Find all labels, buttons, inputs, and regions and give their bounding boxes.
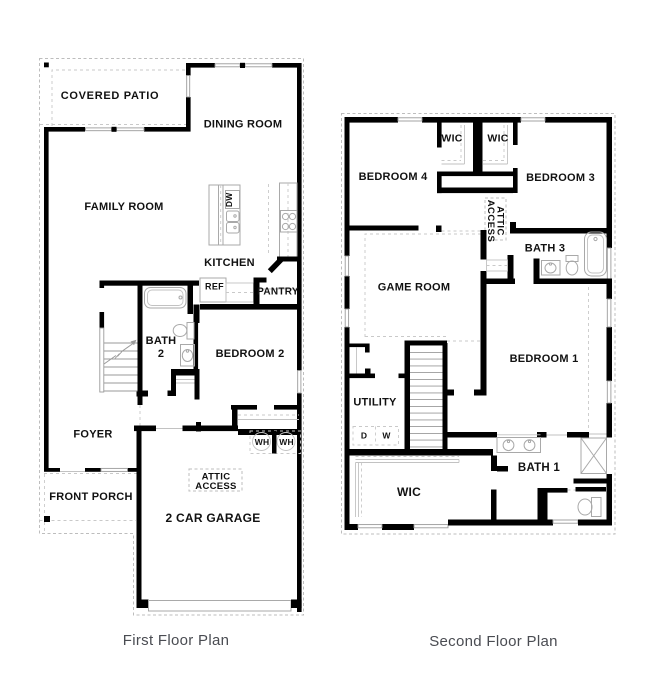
svg-text:FRONT PORCH: FRONT PORCH [49, 491, 132, 503]
svg-text:UTILITY: UTILITY [353, 397, 397, 409]
svg-text:DINING ROOM: DINING ROOM [204, 119, 283, 131]
svg-text:WH: WH [279, 437, 294, 447]
svg-text:BEDROOM 3: BEDROOM 3 [526, 172, 595, 184]
svg-text:BATH 1: BATH 1 [518, 462, 561, 474]
svg-text:WIC: WIC [441, 133, 462, 145]
svg-text:BATH 3: BATH 3 [525, 243, 565, 255]
svg-text:2: 2 [158, 348, 164, 360]
svg-text:PANTRY: PANTRY [257, 287, 299, 298]
svg-text:2 CAR GARAGE: 2 CAR GARAGE [165, 511, 260, 525]
svg-text:BEDROOM 4: BEDROOM 4 [359, 171, 429, 183]
svg-text:W: W [382, 431, 391, 441]
svg-text:ACCESS: ACCESS [195, 481, 236, 492]
svg-text:FOYER: FOYER [73, 429, 112, 441]
svg-text:FAMILY ROOM: FAMILY ROOM [84, 201, 163, 213]
svg-text:GAME ROOM: GAME ROOM [378, 282, 451, 294]
svg-text:BATH: BATH [146, 335, 177, 347]
svg-text:WIC: WIC [487, 133, 508, 145]
svg-text:BEDROOM 1: BEDROOM 1 [510, 353, 579, 365]
svg-text:WIC: WIC [397, 485, 421, 499]
svg-text:WH: WH [255, 437, 270, 447]
svg-text:DW: DW [224, 192, 234, 207]
svg-text:BEDROOM 2: BEDROOM 2 [216, 348, 285, 360]
svg-text:KITCHEN: KITCHEN [204, 257, 255, 269]
svg-text:D: D [361, 431, 367, 441]
svg-text:REF: REF [205, 282, 224, 292]
svg-text:COVERED PATIO: COVERED PATIO [61, 90, 160, 102]
svg-text:Second Floor Plan: Second Floor Plan [429, 633, 558, 650]
svg-text:First Floor Plan: First Floor Plan [123, 632, 230, 649]
